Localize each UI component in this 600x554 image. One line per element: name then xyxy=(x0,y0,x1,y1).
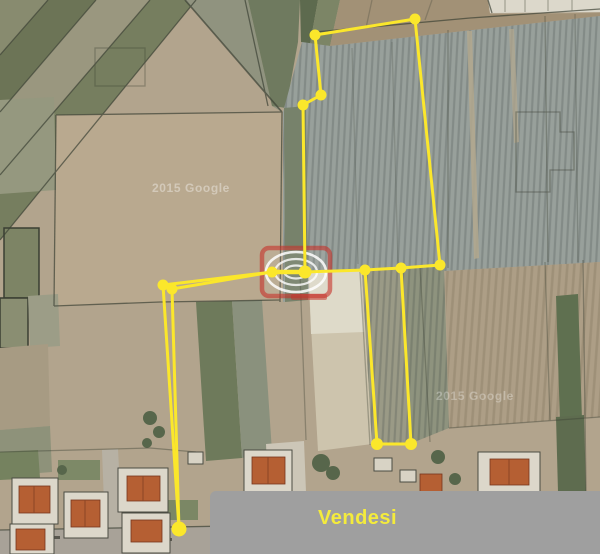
parcel-vertex-B xyxy=(310,30,321,41)
parcel-vertex-C xyxy=(316,90,327,101)
listing-photo: 2015 Google 2015 Google Vendesi xyxy=(0,0,600,554)
parcel-vertex-F xyxy=(360,265,371,276)
google-watermark-left: 2015 Google xyxy=(152,181,230,195)
parcel-vertex-H xyxy=(435,260,446,271)
parcel-vertex-A xyxy=(410,14,421,25)
parcel-vertex-E xyxy=(299,266,312,279)
satellite-map[interactable]: 2015 Google 2015 Google xyxy=(0,0,600,554)
logo-caption-smudge xyxy=(291,294,327,300)
parcel-edge-DE xyxy=(303,105,305,272)
parcel-vertex-M xyxy=(371,438,383,450)
parcel-vertex-L xyxy=(172,522,187,537)
vendesi-label: Vendesi xyxy=(318,507,397,530)
parcel-edge-EF xyxy=(305,270,365,272)
parcel-vertex-N xyxy=(405,438,417,450)
google-watermark-right: 2015 Google xyxy=(436,389,514,403)
parcel-vertex-I xyxy=(267,267,278,278)
parcel-vertex-G xyxy=(396,263,407,274)
parcel-vertex-K xyxy=(167,284,178,295)
vendesi-banner: Vendesi xyxy=(210,491,600,554)
parcel-vertex-D xyxy=(298,100,309,111)
